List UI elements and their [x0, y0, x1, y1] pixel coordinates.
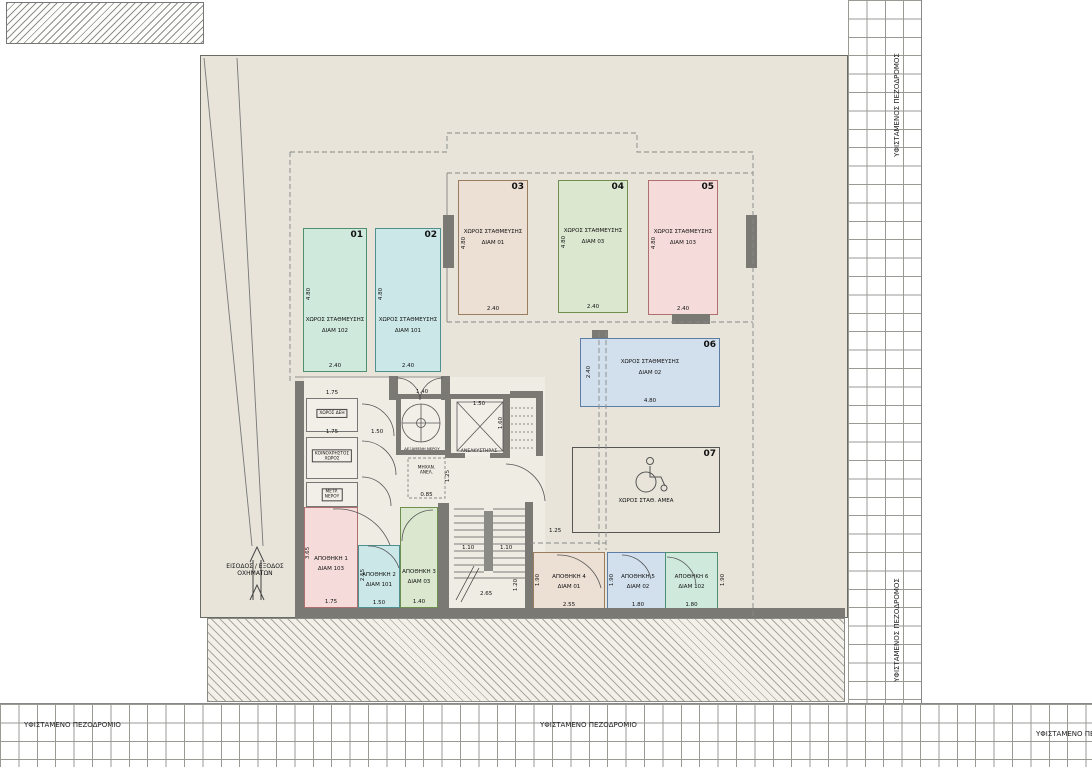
width-dim: 2.40	[376, 363, 440, 369]
space-number: 01	[350, 230, 363, 240]
door-dim: 1.50	[371, 429, 383, 435]
water-meter-room: ΜΕΤΡ. ΝΕΡΟΥ 0.95	[306, 482, 358, 507]
shaft-wall	[536, 391, 543, 456]
stair-dim: 1.20	[513, 579, 519, 591]
width-dim: 1.50	[359, 600, 399, 606]
length-dim: 4.80	[561, 236, 567, 248]
elevator-machine-room: ΜΗΧΑΝ. ΑΝΕΛ. 1.25 0.85	[408, 458, 445, 498]
height-dim: 1.90	[720, 573, 726, 585]
width-dim: 1.75	[307, 429, 357, 435]
pier	[443, 215, 454, 268]
pier	[592, 330, 608, 338]
tank-wall	[396, 394, 445, 399]
sidewalk-bottom	[0, 703, 1092, 767]
room-name: ΑΠΟΘΗΚΗ 5	[608, 574, 668, 580]
room-unit: ΔΙΑΜ 101	[359, 582, 399, 588]
stair-wall	[438, 503, 449, 610]
existing-building-block	[6, 2, 204, 44]
hatched-strip	[207, 618, 845, 702]
width-dim: 1.50	[455, 401, 503, 407]
room-name: ΑΠΟΘΗΚΗ 6	[666, 574, 717, 580]
sidewalk-label-bottom-right: ΥΦΙΣΤΑΜΕΝΟ ΠΕΖ	[1036, 730, 1092, 738]
height-dim: 3.65	[305, 546, 311, 558]
tank-wall	[396, 450, 445, 455]
elevator-wall	[490, 453, 510, 458]
space-number: 07	[703, 449, 716, 459]
space-unit: ΔΙΑΜ 101	[376, 328, 440, 334]
room-name: ΑΠΟΘΗΚΗ 1	[305, 556, 357, 562]
space-name: ΧΩΡΟΣ ΣΤΑΘΜΕΥΣΗΣ	[559, 228, 627, 234]
room-unit: ΔΙΑΜ 103	[305, 566, 357, 572]
storage-room-3: ΑΠΟΘΗΚΗ 3 ΔΙΑΜ 03 3.45 1.40	[400, 507, 438, 608]
elevator: 1.50 1.60 ΑΝΕΛΚΥΣΤΗΡΑΣ	[455, 400, 503, 456]
length-dim: 4.80	[378, 288, 384, 300]
space-number: 05	[701, 182, 714, 192]
pier	[746, 215, 757, 268]
width-dim: 1.40	[401, 599, 437, 605]
sidewalk-label-bottom-left: ΥΦΙΣΤΑΜΕΝΟ ΠΕΖΟΔΡΟΜΙΟ	[24, 721, 121, 729]
parking-space-04: 04 ΧΩΡΟΣ ΣΤΑΘΜΕΥΣΗΣ ΔΙΑΜ 03 4.80 2.40	[558, 180, 628, 313]
room-unit: ΔΙΑΜ 03	[401, 579, 437, 585]
space-number: 04	[611, 182, 624, 192]
space-name: ΧΩΡΟΣ ΣΤΑΘΜΕΥΣΗΣ	[459, 229, 527, 235]
elevator-wall	[445, 394, 451, 458]
length-dim: 4.80	[306, 288, 312, 300]
width-dim: 1.75	[307, 390, 357, 396]
height-dim: 2.55	[360, 568, 366, 580]
stair-wall-right	[525, 502, 533, 610]
space-name: ΧΩΡΟΣ ΣΤΑΘ. ΑΜΕΑ	[573, 498, 719, 504]
vehicle-entrance-label: ΕΙΣΟΔΟΣ / ΕΞΟΔΟΣ ΟΧΗΜΑΤΩΝ	[226, 563, 283, 577]
room-name: ΑΠΟΘΗΚΗ 3	[401, 569, 437, 575]
sidewalk-label-bottom-center: ΥΦΙΣΤΑΜΕΝΟ ΠΕΖΟΔΡΟΜΙΟ	[540, 721, 637, 729]
wall-bottom	[295, 608, 845, 618]
width-dim: 0.85	[408, 492, 445, 498]
width-dim: 2.40	[459, 306, 527, 312]
storage-room-2: ΑΠΟΘΗΚΗ 2 ΔΙΑΜ 101 2.55 1.50	[358, 545, 400, 608]
space-name: ΧΩΡΟΣ ΣΤΑΘΜΕΥΣΗΣ	[304, 317, 366, 323]
room-label: ΧΩΡΟΣ ΔΕΗ	[316, 409, 347, 417]
storage-room-6: ΑΠΟΘΗΚΗ 6 ΔΙΑΜ 102 1.90 1.80	[665, 552, 718, 610]
parking-space-05: 05 ΧΩΡΟΣ ΣΤΑΘΜΕΥΣΗΣ ΔΙΑΜ 103 4.80 2.40	[648, 180, 718, 315]
room-unit: ΔΙΑΜ 102	[666, 584, 717, 590]
floor-plan: 01 ΧΩΡΟΣ ΣΤΑΘΜΕΥΣΗΣ ΔΙΑΜ 102 4.80 2.40 0…	[0, 0, 1092, 767]
storage-room-5: ΑΠΟΘΗΚΗ 5 ΔΙΑΜ 02 1.90 1.80	[607, 552, 669, 610]
parking-space-07-disabled: 07 ΧΩΡΟΣ ΣΤΑΘ. ΑΜΕΑ	[572, 447, 720, 533]
space-number: 02	[424, 230, 437, 240]
space-unit: ΔΙΑΜ 01	[459, 240, 527, 246]
space-name: ΧΩΡΟΣ ΣΤΑΘΜΕΥΣΗΣ	[581, 359, 719, 365]
parking-space-06: 06 ΧΩΡΟΣ ΣΤΑΘΜΕΥΣΗΣ ΔΙΑΜ 02 2.40 4.80	[580, 338, 720, 407]
width-dim: 2.40	[586, 366, 592, 378]
meter-room: ΧΩΡΟΣ ΔΕΗ 1.75 1.10	[306, 398, 358, 432]
elevator-wall	[445, 453, 465, 458]
width-dim: 2.40	[559, 304, 627, 310]
storage-room-1: ΑΠΟΘΗΚΗ 1 ΔΙΑΜ 103 3.65 1.75 1.75	[304, 507, 358, 608]
height-dim: 1.25	[445, 470, 451, 482]
stair-dim: 2.65	[480, 591, 492, 597]
space-number: 06	[703, 340, 716, 350]
room-label: ΜΕΤΡ. ΝΕΡΟΥ	[322, 488, 343, 501]
sidewalk-right	[848, 0, 922, 703]
length-dim: 4.80	[461, 236, 467, 248]
room-label: ΚΟΙΝΟΧΡΗΣΤΟΣ ΧΩΡΟΣ	[312, 449, 352, 462]
pier	[672, 314, 710, 324]
length-dim: 4.80	[651, 236, 657, 248]
parking-space-03: 03 ΧΩΡΟΣ ΣΤΑΘΜΕΥΣΗΣ ΔΙΑΜ 01 4.80 2.40	[458, 180, 528, 315]
elevator-wall	[445, 394, 510, 399]
tank-wall	[396, 394, 401, 455]
stair-dim: 1.25	[549, 528, 561, 534]
height-dim: 1.90	[609, 573, 615, 585]
width-dim: 2.40	[304, 363, 366, 369]
space-unit: ΔΙΑΜ 102	[304, 328, 366, 334]
width-dim: 1.75	[305, 599, 357, 605]
room-label: ΜΗΧΑΝ. ΑΝΕΛ.	[416, 465, 437, 476]
room-unit: ΔΙΑΜ 01	[534, 584, 604, 590]
parking-space-02: 02 ΧΩΡΟΣ ΣΤΑΘΜΕΥΣΗΣ ΔΙΑΜ 101 4.80 2.40	[375, 228, 441, 372]
space-unit: ΔΙΑΜ 103	[649, 240, 717, 246]
wall-left	[295, 381, 304, 612]
room-name: ΑΠΟΘΗΚΗ 4	[534, 574, 604, 580]
length-dim: 4.80	[581, 398, 719, 404]
common-area-room: ΚΟΙΝΟΧΡΗΣΤΟΣ ΧΩΡΟΣ 1.75 1.50 1.60	[306, 437, 358, 479]
space-unit: ΔΙΑΜ 02	[581, 370, 719, 376]
space-unit: ΔΙΑΜ 03	[559, 239, 627, 245]
space-name: ΧΩΡΟΣ ΣΤΑΘΜΕΥΣΗΣ	[649, 229, 717, 235]
parking-space-01: 01 ΧΩΡΟΣ ΣΤΑΘΜΕΥΣΗΣ ΔΙΑΜ 102 4.80 2.40	[303, 228, 367, 372]
height-dim: 1.90	[535, 573, 541, 585]
room-unit: ΔΙΑΜ 02	[608, 584, 668, 590]
width-dim: 2.40	[649, 306, 717, 312]
space-number: 03	[511, 182, 524, 192]
sidewalk-label-right-bottom: ΥΦΙΣΤΑΜΕΝΟΣ ΠΕΖΟΔΡΟΜΟΣ	[893, 578, 901, 682]
space-name: ΧΩΡΟΣ ΣΤΑΘΜΕΥΣΗΣ	[376, 317, 440, 323]
sidewalk-label-right-top: ΥΦΙΣΤΑΜΕΝΟΣ ΠΕΖΟΔΡΟΜΟΣ	[893, 53, 901, 157]
elevator-wall	[503, 394, 510, 458]
stair-dim: 1.10	[500, 545, 512, 551]
stair-dim: 1.10	[462, 545, 474, 551]
storage-room-4: ΑΠΟΘΗΚΗ 4 ΔΙΑΜ 01 1.90 2.55	[533, 552, 605, 610]
stair-spine	[484, 511, 493, 571]
water-tank-room: 1.40 2.00 ΔΕΞΑΜΕΝΗ ΝΕΡΟΥ	[400, 398, 444, 452]
